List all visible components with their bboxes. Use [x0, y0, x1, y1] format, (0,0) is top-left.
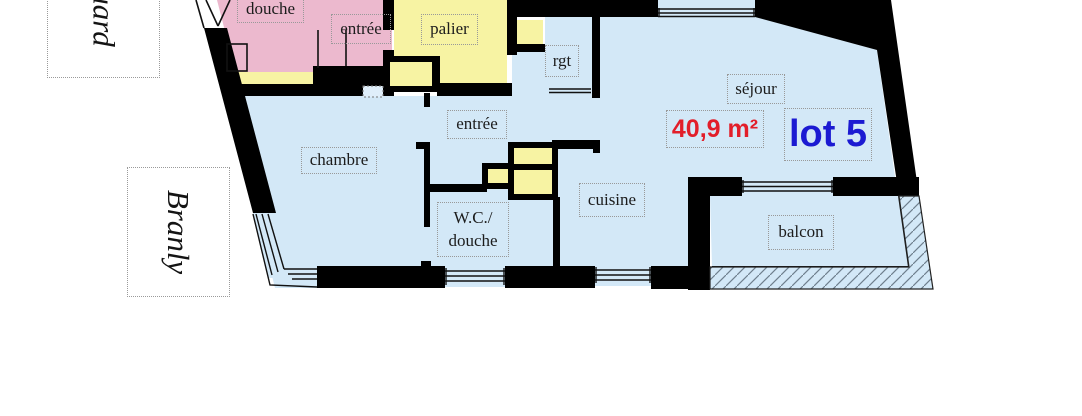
street-label-edouard-text: uard — [85, 0, 121, 47]
room-label-sejour: séjour — [727, 74, 785, 104]
street-label-branly-text: Branly — [161, 190, 197, 274]
lot-area-label: 40,9 m² — [666, 110, 764, 148]
street-label-branly: Branly — [127, 167, 230, 297]
lot-name-label: lot 5 — [784, 108, 872, 161]
room-label-cuisine: cuisine — [579, 183, 645, 217]
room-label-balcon: balcon — [768, 215, 834, 250]
street-label-edouard: uard — [47, 0, 160, 78]
room-label-chambre: chambre — [301, 147, 377, 174]
room-label-entree-voisin: entrée — [331, 14, 391, 44]
room-label-palier: palier — [421, 14, 478, 45]
room-label-entree: entrée — [447, 110, 507, 139]
room-label-douche: douche — [237, 0, 304, 23]
floor-plan-page: uard Branly douche entrée palier rgt séj… — [0, 0, 1082, 416]
room-label-wc-douche: W.C./ douche — [437, 202, 509, 257]
entrance-door-marker — [363, 86, 383, 97]
room-label-rgt: rgt — [545, 45, 579, 77]
